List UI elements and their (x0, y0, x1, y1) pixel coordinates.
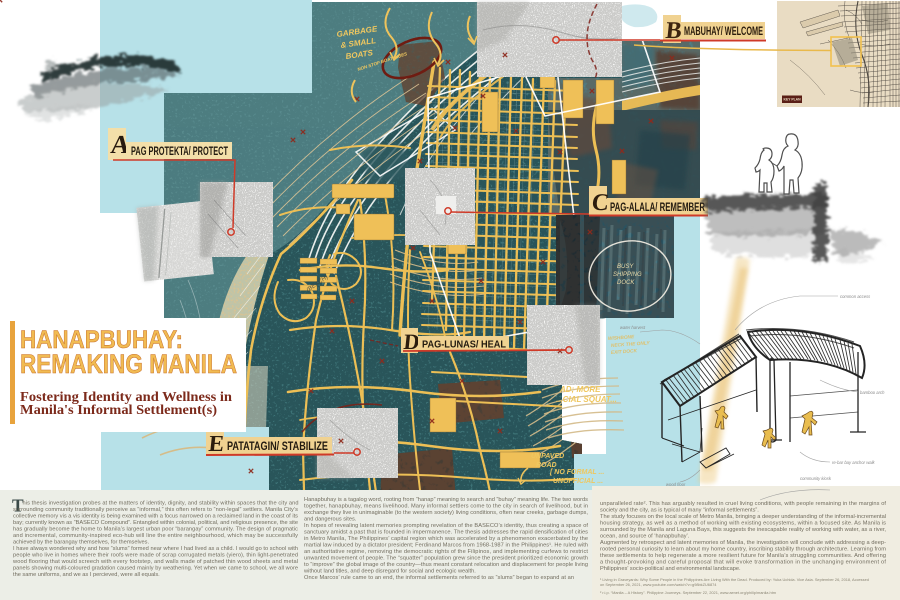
svg-text:The study focuses on the local: The study focuses on the local scale of … (600, 514, 886, 520)
svg-text:unwanted movement of people. T: unwanted movement of people. The “squatt… (304, 556, 588, 562)
svg-text:housing strategy, as well as a: housing strategy, as well as a method of… (600, 521, 886, 527)
svg-text:I have always wondered why and: I have always wondered why and how “slum… (13, 546, 298, 552)
svg-text:the same uniforms, and we as I: the same uniforms, and we as I percieved… (13, 572, 160, 578)
svg-text:DOCK: DOCK (617, 280, 635, 286)
svg-text:martial law induced by a dicta: martial law induced by a dictator presid… (304, 543, 588, 549)
svg-text:people who live in homes where: people who live in homes where their roo… (13, 553, 298, 559)
svg-text:re-bar bay anchor walk: re-bar bay anchor walk (832, 460, 875, 465)
svg-text:...CIAL SQUAT...: ...CIAL SQUAT... (556, 395, 617, 404)
svg-text:bay; currently known as “BASEC: bay; currently known as “BASECO Compound… (13, 520, 298, 526)
svg-text:BUSY: BUSY (617, 264, 634, 270)
svg-text:PATATAGIN/ STABILIZE: PATATAGIN/ STABILIZE (227, 441, 328, 453)
svg-text:PAG PROTEKTA/ PROTECT: PAG PROTEKTA/ PROTECT (131, 146, 228, 158)
svg-text:surrounded by the Manila and L: surrounded by the Manila and Laguna Bays… (600, 527, 886, 533)
svg-text:Hanapbuhay is a tagalog word,: Hanapbuhay is a tagalog word, rooting fr… (304, 497, 588, 503)
svg-text:together, hanapbuhay, means li: together, hanapbuhay, means livelihood. … (304, 504, 588, 510)
svg-text:[ NO FORMAL ...: [ NO FORMAL ... (549, 469, 604, 476)
svg-text:and dangerous sites.: and dangerous sites. (304, 517, 357, 523)
svg-text:unparalleled rate². This has a: unparalleled rate². This has arguably re… (600, 501, 886, 507)
svg-text:PAG-ALALA/ REMEMBER: PAG-ALALA/ REMEMBER (610, 202, 705, 214)
svg-text:a thought-provoking and carefu: a thought-provoking and careful proposal… (600, 560, 886, 566)
svg-text:these settlements to help rege: these settlements to help regenerate a m… (600, 553, 886, 559)
svg-text:without land titles, and deep: without land titles, and deep disregard … (303, 569, 476, 575)
svg-text:PAG-LUNAS/ HEAL: PAG-LUNAS/ HEAL (422, 339, 507, 351)
svg-text:ocean, and source of ‘hanapbuh: ocean, and source of ‘hanapbuhay’. (600, 534, 690, 540)
svg-text:community kiosk: community kiosk (800, 476, 832, 481)
svg-text:E: E (207, 430, 225, 456)
svg-text:exchange they live in unimagin: exchange they live in unimaginable (to t… (304, 510, 588, 516)
svg-text:society and the city, as is ty: society and the city, as is typical of m… (600, 508, 759, 514)
svg-text:achieved by the barangay thems: achieved by the barangay themselves, for… (13, 540, 150, 546)
svg-text:common access: common access (840, 294, 871, 299)
svg-text:to “improve” the global image: to “improve” the global image of the cou… (304, 562, 588, 568)
svg-text:sanctuary amidst a past that i: sanctuary amidst a past that is founded … (304, 530, 588, 536)
svg-text:ROAD: ROAD (536, 462, 557, 469)
svg-text:UNPAVED: UNPAVED (531, 453, 564, 460)
svg-text:wood flooring that would scree: wood flooring that would screech with ev… (12, 559, 298, 565)
svg-text:surrounding community traditio: surrounding community traditionally perc… (13, 507, 298, 513)
svg-text:Philippines’ socio-political a: Philippines’ socio-political and environ… (600, 566, 741, 572)
svg-text:panels showing multi-coloured: panels showing multi-coloured gradation … (13, 566, 298, 572)
svg-text:REMAKING MANILA: REMAKING MANILA (20, 349, 237, 379)
svg-text:bamboo arch: bamboo arch (860, 390, 885, 395)
svg-text:UNOFFICIAL ...: UNOFFICIAL ... (553, 478, 603, 485)
svg-text:water harvest: water harvest (620, 325, 646, 330)
svg-text:Augmented by retrospect and la: Augmented by retrospect and latent memor… (600, 540, 886, 546)
svg-text:has gradually become the home: has gradually become the home to Manila’… (13, 527, 298, 533)
svg-text:MABUHAY/ WELCOME: MABUHAY/ WELCOME (684, 26, 763, 38)
svg-text:In hopes of revealing latent m: In hopes of revealing latent memories pr… (304, 523, 588, 529)
svg-text:his thesis investigation probe: his thesis investigation probes at the m… (23, 501, 299, 507)
svg-text:rooted personal curiosity to l: rooted personal curiosity to learn about… (600, 547, 886, 553)
svg-text:collective memory vis a vis id: collective memory vis a vis identity is … (13, 514, 298, 520)
svg-text:Once Marcos’ rule came to an e: Once Marcos’ rule came to an end, the in… (304, 575, 574, 581)
svg-text:AD; MORE: AD; MORE (559, 385, 601, 394)
svg-text:an authoritative regime, remov: an authoritative regime, removing the de… (304, 549, 588, 555)
svg-text:on September 26, 2021, www.you: on September 26, 2021, www.youtube.com/w… (600, 582, 717, 587)
svg-text:in Metro Manila, The Philippin: in Metro Manila, The Philippines’ capita… (304, 536, 588, 542)
svg-text:² r.i.p. “Manila – A History”.: ² r.i.p. “Manila – A History”. Philippin… (600, 590, 776, 595)
svg-text:KEY PLAN: KEY PLAN (784, 98, 802, 102)
svg-text:and incremental, community-ins: and incremental, community-inspired eco-… (13, 533, 298, 539)
svg-text:SHIPPING: SHIPPING (613, 272, 642, 278)
svg-text:wood floor: wood floor (666, 482, 686, 487)
svg-text:Manila's Informal Settlement(s: Manila's Informal Settlement(s) (20, 403, 217, 418)
